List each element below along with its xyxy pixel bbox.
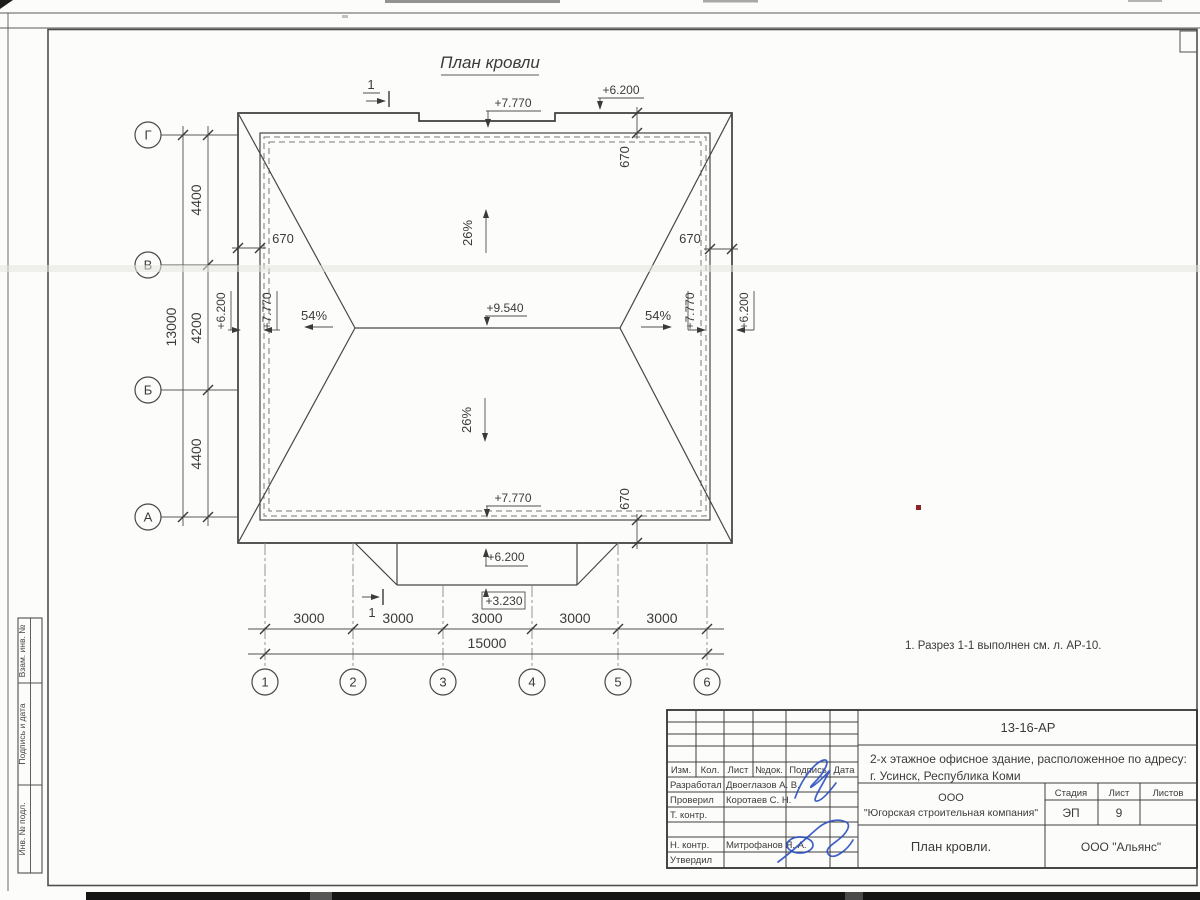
elevation-canopy-edge: +3.230 [485,594,522,608]
bottom-band-gap [845,892,863,900]
elevation-parapet-top: +6.200 [602,83,639,97]
tb-sheet-value: 9 [1116,806,1123,820]
top-smudge [703,0,758,3]
roof-eave-line [260,133,710,520]
dim-col-3: 3000 [471,610,502,626]
tb-col-list: Лист [728,765,749,776]
elevation-right-eave: +7.770 [683,292,697,329]
tb-sheet-name: План кровли. [911,839,991,854]
dim-row-1: 4400 [188,184,204,215]
top-smudge [385,0,560,3]
elevation-eave-top: +7.770 [494,96,531,110]
tb-role-checked: Проверил [670,795,714,806]
roof-hidden-line-2 [269,142,701,511]
elevation-marks: +7.770 +6.200 +9.540 +7.770 +6.200 +3.23… [214,83,754,609]
corner-smudge [0,0,13,9]
tb-project-line1: 2-х этажное офисное здание, расположенно… [870,752,1187,766]
dim-col-5: 3000 [646,610,677,626]
tb-stage-value: ЭП [1062,806,1079,820]
tb-role-developed: Разработал [670,780,722,791]
dim-670-top: 670 [617,146,632,168]
tb-name-checked: Коротаев С. Н. [726,795,791,806]
canopy-hip-right [577,543,618,585]
dim-row-3: 4400 [188,438,204,469]
grid-axes: Г В Б А 1 2 3 4 5 6 [135,122,720,695]
hip-top-right [620,113,732,328]
tb-org-line2: "Югорская строительная компания" [864,807,1038,819]
stamp-label-inv: Инв. № подл. [17,803,27,856]
tb-col-ndok: №док. [755,765,783,776]
speck [342,15,348,18]
tb-col-data: Дата [833,765,855,776]
dim-670-left: 670 [272,231,294,246]
tb-name-developed: Двоеглазов А. В. [726,780,800,791]
axis-label-5: 5 [614,675,621,690]
tb-role-tcontrol: Т. контр. [670,810,707,821]
title-block: Изм. Кол. Лист №док. Подпись Дата Разраб… [667,710,1197,868]
bottom-band-gap [310,892,332,900]
roof-hidden-line-1 [264,137,706,516]
slope-east: 54% [645,308,671,323]
stamp-label-vzam: Взам. инв. № [17,625,27,678]
tb-doc-number: 13-16-АР [1001,720,1056,735]
axis-label-a: А [144,510,153,525]
axis-label-3: 3 [439,675,446,690]
top-smudge [1128,0,1162,2]
axis-label-4: 4 [528,675,535,690]
tb-sheets-label: Листов [1153,788,1184,799]
dim-670-bottom: 670 [617,488,632,510]
dim-col-2: 3000 [382,610,413,626]
bottom-scan-band [86,892,1200,900]
tb-col-izm: Изм. [671,765,691,776]
dim-row-total: 13000 [163,307,179,346]
section-marks: 1 1 [362,77,389,620]
tb-project-line2: г. Усинск, Республика Коми [870,769,1021,783]
drawing-title: План кровли [440,53,540,72]
tb-role-approved: Утвердил [670,855,712,866]
note-text: 1. Разрез 1-1 выполнен см. л. АР-10. [905,640,1102,652]
slope-arrows: 26% 26% 54% 54% [301,210,671,441]
margin-stamps: Взам. инв. № Подпись и дата Инв. № подл. [17,618,42,873]
elevation-ridge: +9.540 [486,301,523,315]
slope-south: 26% [459,407,474,433]
canopy-hip-left [355,543,397,585]
elevation-eave-bottom: +7.770 [494,491,531,505]
dimensions-bottom: 3000 3000 3000 3000 3000 15000 [248,610,724,659]
dimensions-left: 4400 4200 4400 13000 [163,126,213,526]
tb-sheet-label: Лист [1109,788,1130,799]
axis-label-b: Б [144,383,153,398]
dim-col-4: 3000 [559,610,590,626]
tb-role-ncontrol: Н. контр. [670,840,709,851]
slope-west: 54% [301,308,327,323]
tb-stage-label: Стадия [1055,788,1087,799]
dim-col-total: 15000 [468,635,507,651]
hip-top-left [238,113,355,328]
corner-cell [1180,31,1197,52]
dim-670-right: 670 [679,231,701,246]
scanned-drawing-sheet: Взам. инв. № Подпись и дата Инв. № подл.… [0,0,1200,900]
red-mark [916,505,921,510]
elevation-left-eave: +7.770 [260,292,274,329]
roof-plan-sheet: Взам. инв. № Подпись и дата Инв. № подл.… [0,0,1200,900]
stamp-label-podpis: Подпись и дата [17,703,27,764]
tb-contractor: ООО "Альянс" [1081,840,1161,854]
tb-col-kol: Кол. [701,765,720,776]
axis-label-2: 2 [349,675,356,690]
elevation-left-parapet: +6.200 [214,292,228,329]
elevation-right-parapet: +6.200 [737,292,751,329]
roof-plan [238,113,732,585]
dim-col-1: 3000 [293,610,324,626]
tb-org-line1: ООО [938,792,964,804]
scan-streak [0,265,1200,272]
elevation-canopy-top: +6.200 [487,550,524,564]
axis-extension-lines [161,135,707,669]
dim-row-2: 4200 [188,312,204,343]
section-label-top: 1 [367,77,374,92]
axis-label-1: 1 [261,675,268,690]
axis-label-6: 6 [703,675,710,690]
slope-north: 26% [460,220,475,246]
axis-label-g: Г [144,128,151,143]
section-label-bottom: 1 [368,605,375,620]
